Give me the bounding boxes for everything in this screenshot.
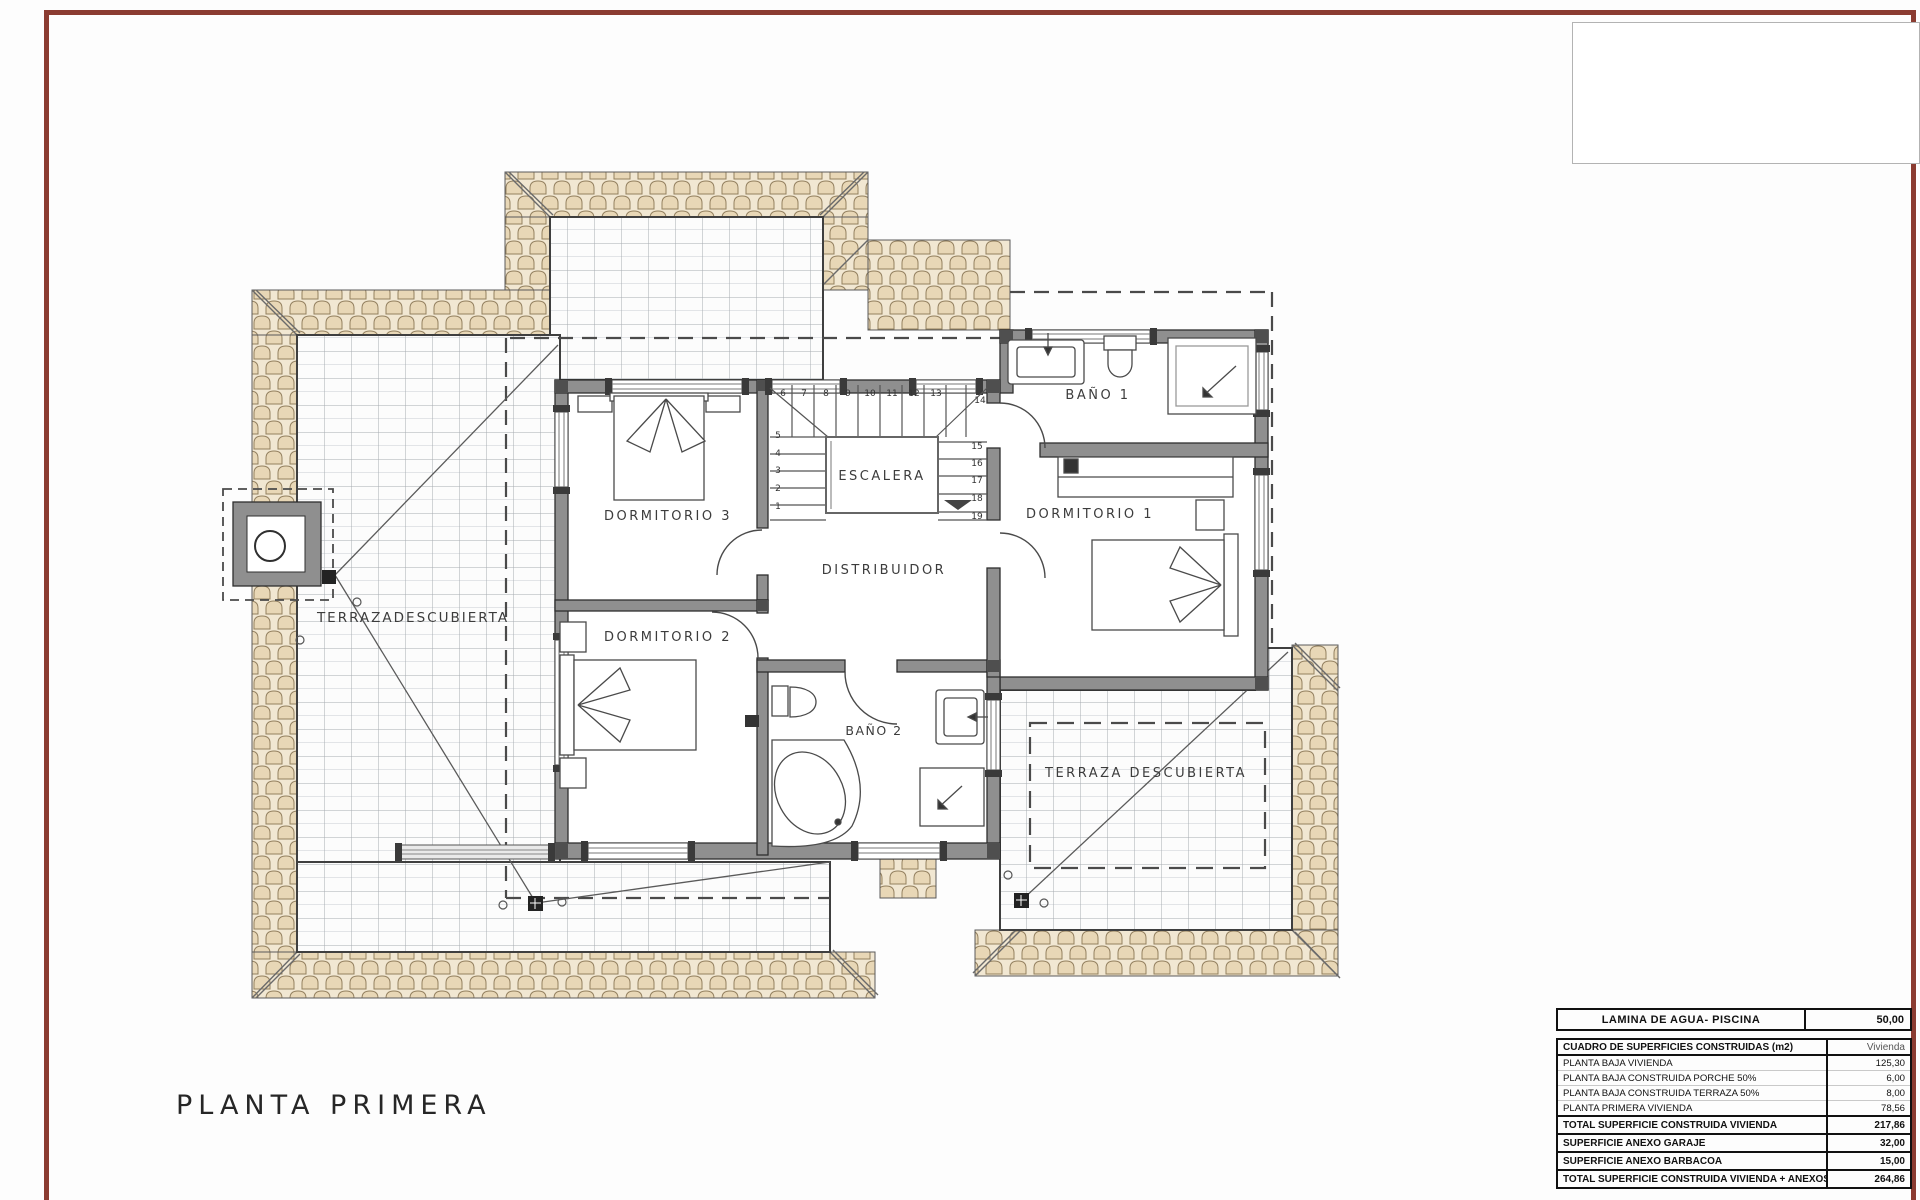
svg-text:1: 1 xyxy=(775,502,781,512)
row-label: PLANTA BAJA VIVIENDA xyxy=(1557,1055,1827,1071)
label-bano2: BAÑO 2 xyxy=(845,723,902,738)
row-label: PLANTA BAJA CONSTRUIDA PORCHE 50% xyxy=(1557,1071,1827,1086)
svg-text:11: 11 xyxy=(886,389,897,399)
svg-text:14: 14 xyxy=(974,396,986,406)
svg-text:9: 9 xyxy=(845,389,851,399)
switch-symbol xyxy=(745,715,759,727)
total-label: TOTAL SUPERFICIE CONSTRUIDA VIVIENDA xyxy=(1557,1116,1827,1134)
total-value: 15,00 xyxy=(1827,1152,1911,1170)
row-value: 8,00 xyxy=(1827,1086,1911,1101)
row-value: 125,30 xyxy=(1827,1055,1911,1071)
svg-text:17: 17 xyxy=(971,476,982,486)
svg-text:4: 4 xyxy=(775,449,781,459)
bathtub-bano2 xyxy=(761,740,861,847)
svg-text:6: 6 xyxy=(780,389,786,399)
drawing-sheet: DORMITORIO 3 DORMITORIO 2 DORMITORIO 1 B… xyxy=(0,0,1920,1200)
svg-text:19: 19 xyxy=(971,512,983,522)
piscina-value: 50,00 xyxy=(1805,1009,1911,1030)
svg-text:18: 18 xyxy=(971,494,983,504)
piscina-label: LAMINA DE AGUA- PISCINA xyxy=(1557,1009,1805,1030)
svg-text:5: 5 xyxy=(775,431,781,441)
total-value: 264,86 xyxy=(1827,1170,1911,1188)
label-dormitorio1: DORMITORIO 1 xyxy=(1026,507,1154,522)
svg-text:10: 10 xyxy=(864,389,876,399)
plan-title: PLANTA PRIMERA xyxy=(176,1090,492,1121)
table-total-row: SUPERFICIE ANEXO BARBACOA 15,00 xyxy=(1557,1152,1911,1170)
window-dorm2-bottom xyxy=(581,841,695,861)
window-dorm1-right xyxy=(1253,468,1270,577)
label-terraza-izquierda: TERRAZADESCUBIERTA xyxy=(316,610,509,626)
table-total-row: TOTAL SUPERFICIE CONSTRUIDA VIVIENDA 217… xyxy=(1557,1116,1911,1134)
row-value: 6,00 xyxy=(1827,1071,1911,1086)
table-row: PLANTA BAJA CONSTRUIDA PORCHE 50% 6,00 xyxy=(1557,1071,1911,1086)
table-row: PLANTA BAJA VIVIENDA 125,30 xyxy=(1557,1055,1911,1071)
superficies-header-value: Vivienda xyxy=(1827,1039,1911,1055)
total-label: SUPERFICIE ANEXO GARAJE xyxy=(1557,1134,1827,1152)
svg-text:8: 8 xyxy=(823,389,829,399)
total-label: SUPERFICIE ANEXO BARBACOA xyxy=(1557,1152,1827,1170)
row-value: 78,56 xyxy=(1827,1101,1911,1117)
shower-bano2 xyxy=(920,768,984,826)
table-row: PLANTA PRIMERA VIVIENDA 78,56 xyxy=(1557,1101,1911,1117)
svg-text:13: 13 xyxy=(930,389,941,399)
label-dormitorio3: DORMITORIO 3 xyxy=(604,509,732,524)
piscina-table: LAMINA DE AGUA- PISCINA 50,00 xyxy=(1556,1008,1912,1031)
surfaces-tables: LAMINA DE AGUA- PISCINA 50,00 CUADRO DE … xyxy=(1556,1008,1912,1189)
row-label: PLANTA BAJA CONSTRUIDA TERRAZA 50% xyxy=(1557,1086,1827,1101)
total-value: 217,86 xyxy=(1827,1116,1911,1134)
svg-text:7: 7 xyxy=(801,389,807,399)
svg-text:2: 2 xyxy=(775,484,781,494)
closet-dormitorio1 xyxy=(1058,457,1233,497)
label-terraza-derecha: TERRAZA DESCUBIERTA xyxy=(1044,766,1247,781)
toilet-bano2 xyxy=(772,686,816,717)
window-dorm3-left xyxy=(553,405,570,494)
washbasin-bano2 xyxy=(936,690,988,744)
window-bano2-right xyxy=(985,693,1002,777)
label-bano1: BAÑO 1 xyxy=(1065,387,1130,403)
svg-text:3: 3 xyxy=(775,466,781,476)
row-label: PLANTA PRIMERA VIVIENDA xyxy=(1557,1101,1827,1117)
window-bano2-bottom xyxy=(851,841,947,861)
table-header-row: CUADRO DE SUPERFICIES CONSTRUIDAS (m2) V… xyxy=(1557,1039,1911,1055)
label-escalera: ESCALERA xyxy=(838,469,925,484)
table-total-row: TOTAL SUPERFICIE CONSTRUIDA VIVIENDA + A… xyxy=(1557,1170,1911,1188)
washbasin-bano1 xyxy=(1008,333,1084,384)
table-row: LAMINA DE AGUA- PISCINA 50,00 xyxy=(1557,1009,1911,1030)
shower-bano1 xyxy=(1168,338,1256,414)
table-row: PLANTA BAJA CONSTRUIDA TERRAZA 50% 8,00 xyxy=(1557,1086,1911,1101)
superficies-table: CUADRO DE SUPERFICIES CONSTRUIDAS (m2) V… xyxy=(1556,1038,1912,1189)
total-label: TOTAL SUPERFICIE CONSTRUIDA VIVIENDA + A… xyxy=(1557,1170,1827,1188)
label-dormitorio2: DORMITORIO 2 xyxy=(604,630,732,645)
total-value: 32,00 xyxy=(1827,1134,1911,1152)
table-total-row: SUPERFICIE ANEXO GARAJE 32,00 xyxy=(1557,1134,1911,1152)
svg-text:12: 12 xyxy=(908,389,919,399)
svg-text:15: 15 xyxy=(971,442,982,452)
terrace-balustrade xyxy=(395,843,555,861)
superficies-header-label: CUADRO DE SUPERFICIES CONSTRUIDAS (m2) xyxy=(1557,1039,1827,1055)
label-distribuidor: DISTRIBUIDOR xyxy=(822,563,946,578)
chimney-icon xyxy=(223,489,336,600)
svg-text:16: 16 xyxy=(971,459,983,469)
